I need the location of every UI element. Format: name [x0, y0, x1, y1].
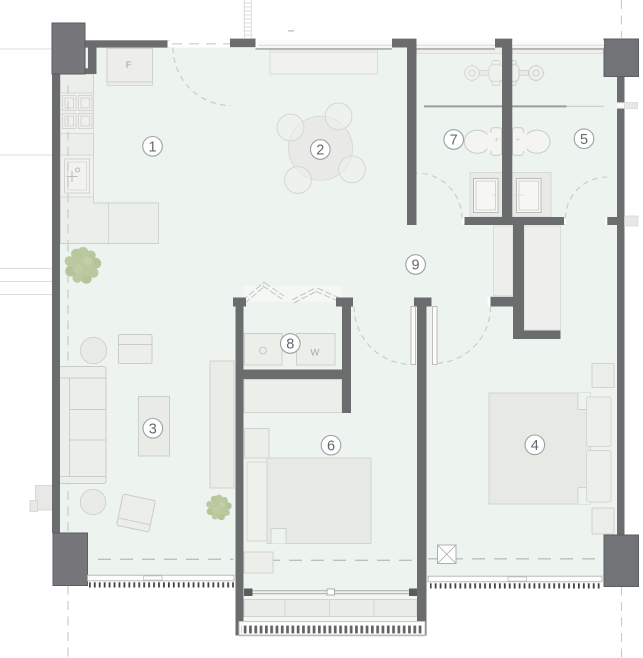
svg-text:2: 2 — [316, 143, 324, 159]
svg-text:8: 8 — [286, 337, 294, 353]
svg-text:9: 9 — [412, 258, 420, 274]
svg-text:3: 3 — [149, 422, 157, 438]
svg-text:5: 5 — [580, 132, 588, 148]
svg-text:F: F — [126, 60, 132, 71]
svg-text:7: 7 — [450, 133, 458, 149]
svg-text:6: 6 — [327, 438, 335, 454]
svg-text:1: 1 — [148, 140, 156, 156]
svg-text:W: W — [310, 348, 319, 359]
svg-text:4: 4 — [531, 438, 539, 454]
